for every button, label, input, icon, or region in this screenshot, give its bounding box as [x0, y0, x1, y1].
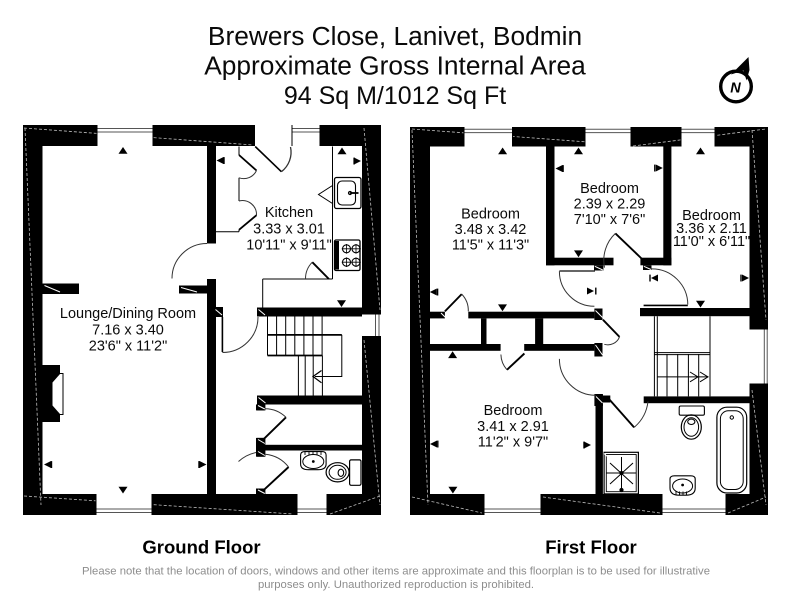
- svg-text:3.33 x 3.01: 3.33 x 3.01: [253, 222, 325, 238]
- svg-text:Please note that the location: Please note that the location of doors, …: [82, 565, 710, 577]
- svg-text:First Floor: First Floor: [545, 537, 636, 558]
- svg-text:Bedroom: Bedroom: [580, 181, 639, 197]
- svg-text:23'6" x 11'2": 23'6" x 11'2": [89, 339, 167, 355]
- svg-text:N: N: [730, 81, 741, 97]
- svg-text:purposes only. Unauthorized re: purposes only. Unauthorized reproduction…: [258, 579, 534, 591]
- svg-text:Kitchen: Kitchen: [265, 205, 313, 221]
- svg-text:7'10" x 7'6": 7'10" x 7'6": [574, 212, 645, 228]
- svg-text:Bedroom: Bedroom: [461, 207, 520, 223]
- svg-text:Approximate Gross Internal Are: Approximate Gross Internal Area: [204, 51, 586, 81]
- svg-text:11'0" x 6'11": 11'0" x 6'11": [673, 234, 750, 250]
- svg-text:Bedroom: Bedroom: [484, 403, 543, 419]
- svg-text:2.39 x 2.29: 2.39 x 2.29: [574, 197, 646, 213]
- svg-text:Brewers Close, Lanivet, Bodmin: Brewers Close, Lanivet, Bodmin: [208, 21, 582, 51]
- svg-text:Ground Floor: Ground Floor: [142, 537, 260, 558]
- svg-text:3.41 x 2.91: 3.41 x 2.91: [477, 419, 549, 435]
- svg-text:3.48 x 3.42: 3.48 x 3.42: [455, 222, 527, 238]
- svg-text:Lounge/Dining Room: Lounge/Dining Room: [60, 306, 196, 322]
- svg-text:10'11" x 9'11": 10'11" x 9'11": [246, 238, 331, 254]
- svg-text:11'5" x 11'3": 11'5" x 11'3": [452, 238, 529, 254]
- svg-text:7.16 x 3.40: 7.16 x 3.40: [92, 323, 164, 339]
- svg-text:94 Sq M/1012 Sq Ft: 94 Sq M/1012 Sq Ft: [284, 82, 506, 110]
- svg-text:11'2" x 9'7": 11'2" x 9'7": [478, 435, 548, 451]
